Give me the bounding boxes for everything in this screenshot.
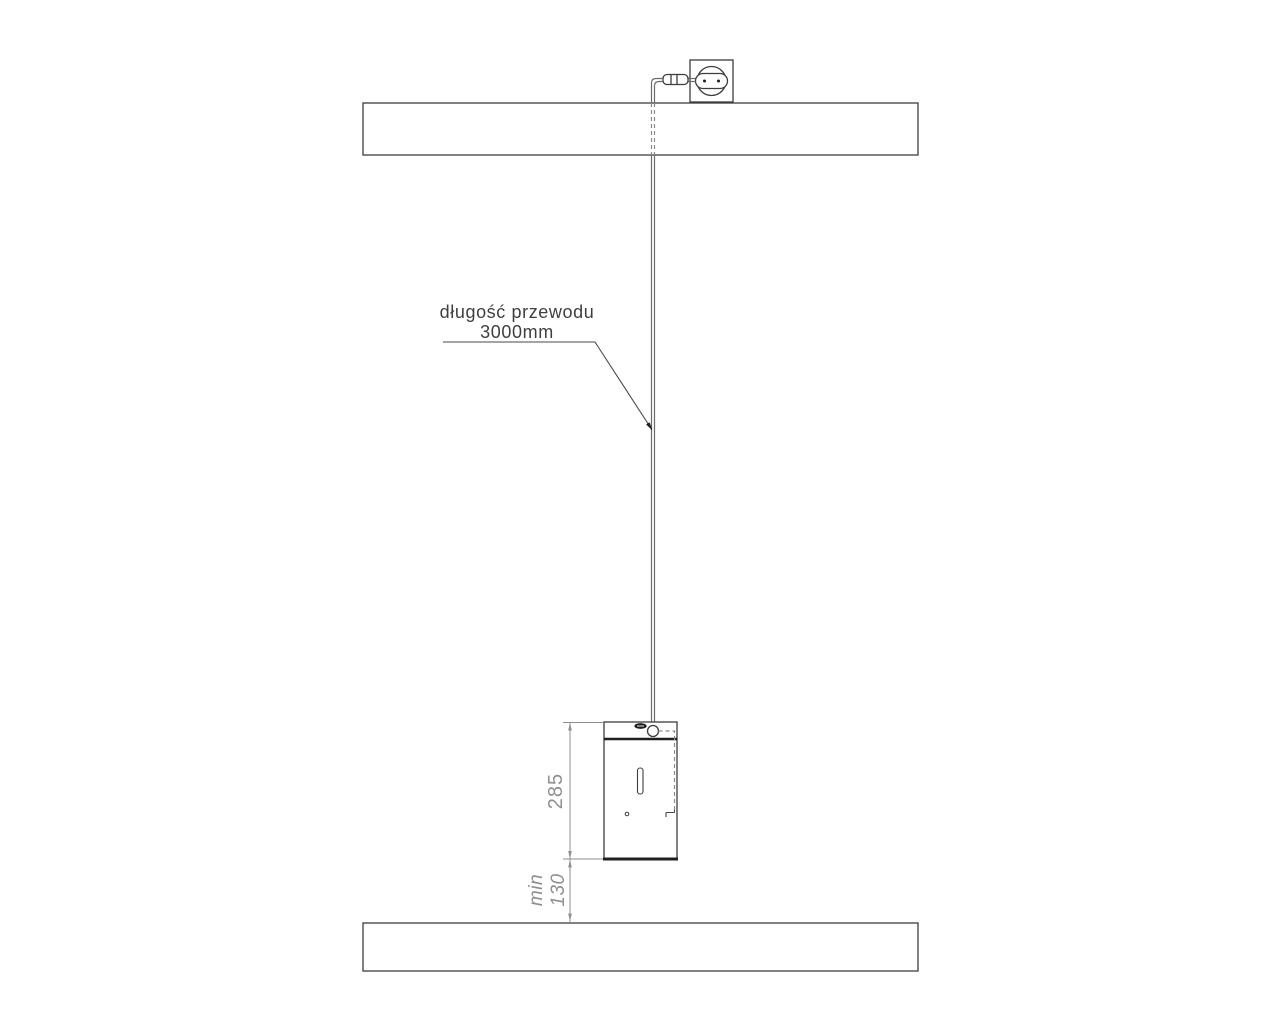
plug-head bbox=[696, 74, 728, 89]
dimension-285: 285 bbox=[545, 723, 603, 860]
wall-section-bottom bbox=[363, 923, 918, 971]
dim-text-min: min bbox=[526, 874, 547, 906]
cable-length-label-line1: długość przewodu bbox=[440, 302, 595, 322]
dim-arrow-up-icon bbox=[568, 860, 572, 868]
soap-dispenser bbox=[603, 722, 678, 860]
dim-arrow-up-icon bbox=[568, 723, 572, 731]
dim-arrow-down-icon bbox=[568, 914, 572, 922]
cable-length-label-line2: 3000mm bbox=[480, 322, 554, 342]
callout-leader-line bbox=[443, 342, 652, 429]
dimension-min-130: min 130 bbox=[526, 859, 572, 922]
dim-text-130: 130 bbox=[548, 873, 569, 906]
indicator-dot bbox=[625, 812, 629, 816]
plug-pin-left bbox=[703, 80, 706, 83]
cable-gland bbox=[648, 726, 659, 737]
plug-body bbox=[663, 75, 688, 85]
dim-text-285: 285 bbox=[545, 773, 567, 809]
wall-section-bottom-outline bbox=[363, 923, 918, 971]
plug-pin-right bbox=[717, 80, 720, 83]
cable-length-callout: długość przewodu 3000mm bbox=[440, 302, 653, 431]
power-cable bbox=[652, 79, 664, 726]
power-outlet-icon bbox=[690, 60, 733, 102]
drawing-canvas: długość przewodu 3000mm 285 bbox=[0, 0, 1280, 1024]
cable-corner-inner bbox=[655, 82, 664, 104]
wall-section-top bbox=[363, 103, 918, 155]
dim-arrow-down-icon bbox=[568, 851, 572, 859]
level-window-slot bbox=[638, 768, 644, 794]
wall-section-top-outline bbox=[363, 103, 918, 155]
technical-drawing-page: długość przewodu 3000mm 285 bbox=[0, 0, 1280, 1024]
